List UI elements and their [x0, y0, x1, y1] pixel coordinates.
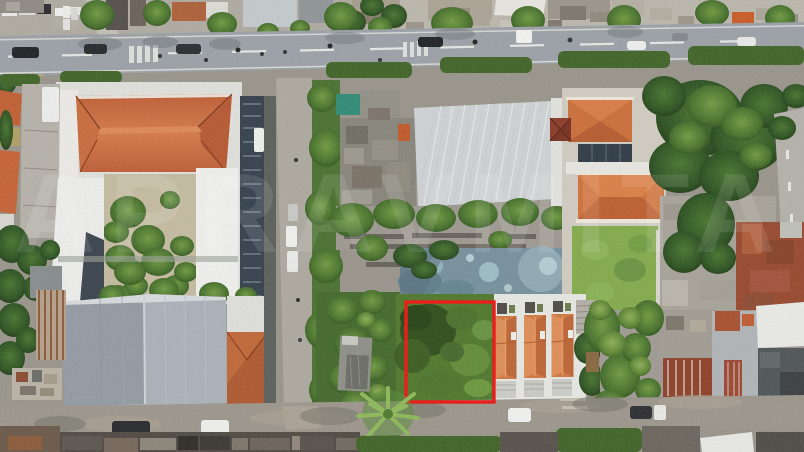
svg-text:APRAVMITA: APRAVMITA — [14, 151, 789, 276]
